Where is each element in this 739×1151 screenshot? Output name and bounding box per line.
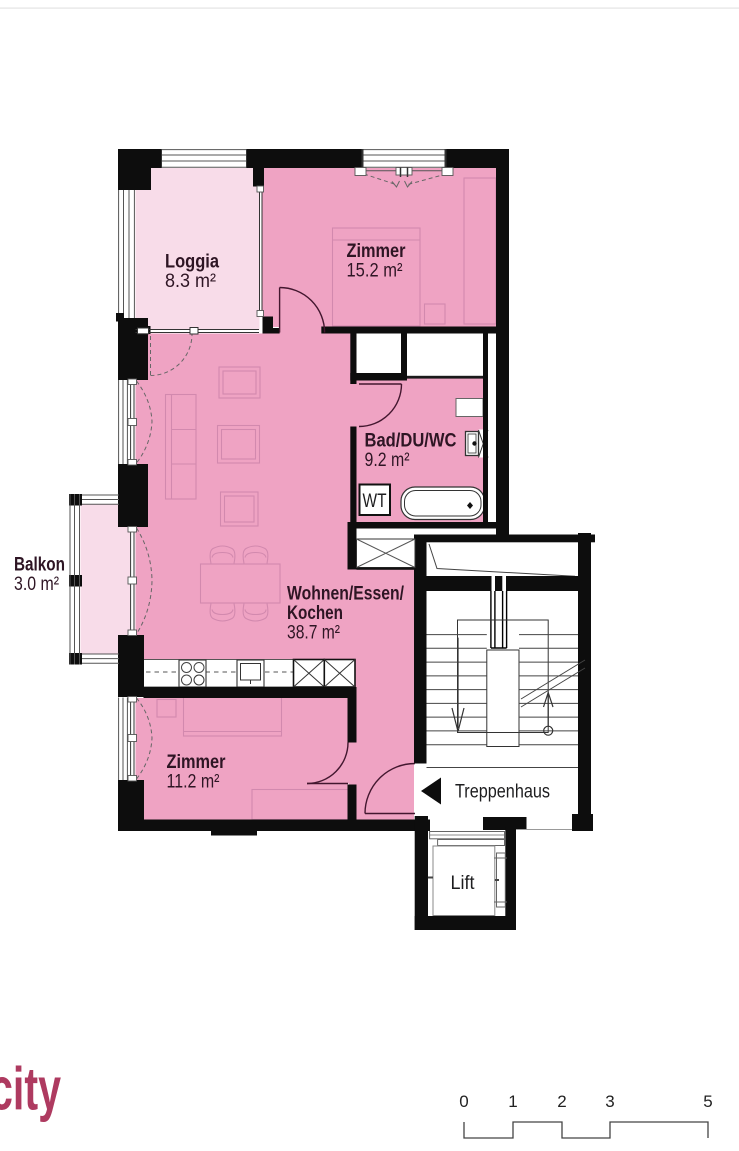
svg-text:Balkon: Balkon [14, 554, 65, 576]
svg-text:0: 0 [459, 1092, 468, 1111]
svg-text:3.0 m²: 3.0 m² [14, 574, 59, 595]
svg-text:Zimmer: Zimmer [167, 751, 226, 773]
svg-text:Loggia: Loggia [165, 251, 219, 273]
svg-text:Kochen: Kochen [287, 602, 343, 624]
svg-text:11.2 m²: 11.2 m² [167, 772, 220, 793]
svg-text:9.2 m²: 9.2 m² [365, 450, 410, 471]
svg-text:city: city [0, 1056, 61, 1123]
svg-text:8.3 m²: 8.3 m² [165, 271, 216, 292]
svg-text:Bad/DU/WC: Bad/DU/WC [365, 430, 457, 452]
svg-text:Lift: Lift [451, 872, 476, 894]
svg-text:3: 3 [605, 1092, 614, 1111]
svg-text:1: 1 [508, 1092, 517, 1111]
svg-text:Treppenhaus: Treppenhaus [455, 781, 550, 803]
svg-text:5: 5 [703, 1092, 712, 1111]
svg-text:2: 2 [557, 1092, 566, 1111]
svg-text:15.2 m²: 15.2 m² [347, 261, 403, 282]
svg-text:Zimmer: Zimmer [347, 240, 406, 262]
svg-text:38.7 m²: 38.7 m² [287, 623, 340, 644]
svg-text:WT: WT [363, 491, 387, 512]
